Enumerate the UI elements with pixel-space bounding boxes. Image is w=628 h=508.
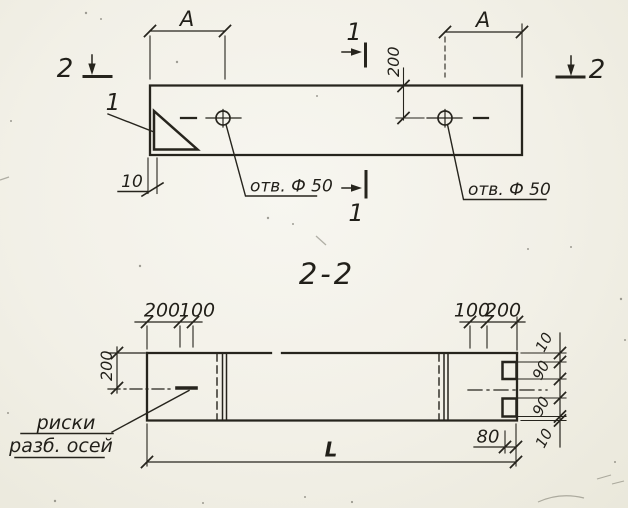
axis-note-line1: риски xyxy=(36,412,96,434)
dim-80: 80 xyxy=(474,427,522,454)
dim-80-label: 80 xyxy=(477,427,500,448)
dim-stack-90-lower: 90 xyxy=(529,394,554,419)
section-mark-1-top: 1 xyxy=(342,18,366,66)
dim-length-label: L xyxy=(325,438,338,462)
section-mark-2-left: 2 xyxy=(57,54,111,84)
dim-a-right-label: A xyxy=(474,8,490,32)
detail-callout-1: 1 xyxy=(106,90,154,132)
section-mark-1-bottom: 1 xyxy=(342,172,366,228)
hole-left xyxy=(181,110,241,128)
dim-top-left-200-100: 200 100 xyxy=(135,300,215,350)
axis-note-line2: разб. осей xyxy=(8,435,113,457)
beam-outline xyxy=(150,86,522,156)
dim-side-200: 200 xyxy=(97,347,145,394)
joint-lines-right xyxy=(439,354,448,420)
section-view: 2-2 риски разб. осей xyxy=(8,257,566,468)
hole-right xyxy=(427,110,488,128)
corner-gusset-triangle xyxy=(154,111,198,150)
socket-squares xyxy=(503,362,517,417)
hole-left-label: отв. Ф 50 xyxy=(250,177,333,197)
plan-view: 1 отв. Ф 50 отв. Ф 50 A xyxy=(57,7,606,227)
dim-200-left-label: 200 xyxy=(144,300,180,322)
hole-right-label: отв. Ф 50 xyxy=(468,180,551,200)
detail-mark-label: 1 xyxy=(106,90,121,116)
technical-drawing: 1 отв. Ф 50 отв. Ф 50 A xyxy=(0,0,628,508)
dim-length-L: L xyxy=(142,424,522,468)
dim-10-label: 10 xyxy=(121,172,143,192)
dim-top-right-100-200: 100 200 xyxy=(454,300,525,351)
drawing-sheet: 1 отв. Ф 50 отв. Ф 50 A xyxy=(0,0,628,508)
dim-200-label: 200 xyxy=(384,46,403,77)
axis-note-callout: риски разб. осей xyxy=(8,391,189,458)
section-mark-2-left-label: 2 xyxy=(57,54,74,84)
dim-a-right: A xyxy=(440,8,528,77)
hole-right-callout: отв. Ф 50 xyxy=(448,125,551,201)
dim-stack-10-top: 10 xyxy=(532,330,557,355)
dim-side-200-label: 200 xyxy=(97,350,116,381)
dim-stack-10-bottom: 10 xyxy=(532,426,557,451)
section-mark-2-right: 2 xyxy=(557,55,605,85)
section-mark-1-top-label: 1 xyxy=(346,18,361,46)
dim-a-left-label: A xyxy=(178,7,194,31)
section-mark-2-right-label: 2 xyxy=(589,55,606,85)
dim-100-left-label: 100 xyxy=(179,300,215,322)
dim-a-left: A xyxy=(145,7,231,79)
section-mark-1-bottom-label: 1 xyxy=(348,199,363,227)
beam-outline-section xyxy=(147,353,517,421)
dim-10: 10 xyxy=(118,158,163,196)
section-title: 2-2 xyxy=(299,257,355,291)
center-axis-line xyxy=(108,388,547,390)
dim-200-right-label: 200 xyxy=(485,300,521,322)
hole-left-callout: отв. Ф 50 xyxy=(226,125,333,197)
joint-lines-left xyxy=(217,354,227,420)
